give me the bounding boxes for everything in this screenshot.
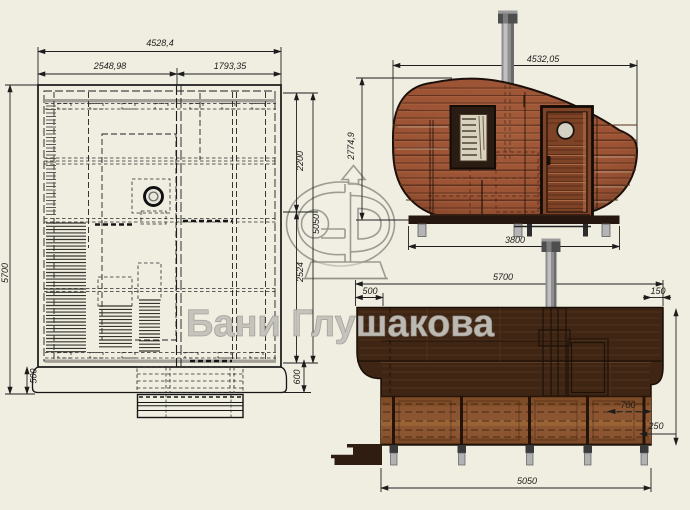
svg-text:2524: 2524 <box>295 262 305 283</box>
svg-text:500: 500 <box>362 286 377 296</box>
svg-text:700: 700 <box>620 400 635 410</box>
svg-text:4532,05: 4532,05 <box>527 54 561 64</box>
svg-text:2774,9: 2774,9 <box>346 132 356 161</box>
svg-text:5050: 5050 <box>311 214 321 234</box>
svg-text:1793,35: 1793,35 <box>214 61 248 71</box>
svg-text:5700: 5700 <box>493 272 513 282</box>
svg-text:250: 250 <box>647 421 663 431</box>
svg-text:Бани Глушакова: Бани Глушакова <box>186 303 495 345</box>
svg-text:2548,98: 2548,98 <box>93 61 127 71</box>
svg-text:600: 600 <box>292 369 302 384</box>
svg-text:5050: 5050 <box>517 476 537 486</box>
svg-text:4528,4: 4528,4 <box>146 38 174 48</box>
svg-text:2200: 2200 <box>295 151 305 172</box>
svg-text:3800: 3800 <box>505 235 525 245</box>
svg-text:150: 150 <box>650 286 665 296</box>
svg-text:5700: 5700 <box>0 263 10 283</box>
svg-text:500: 500 <box>29 368 39 383</box>
